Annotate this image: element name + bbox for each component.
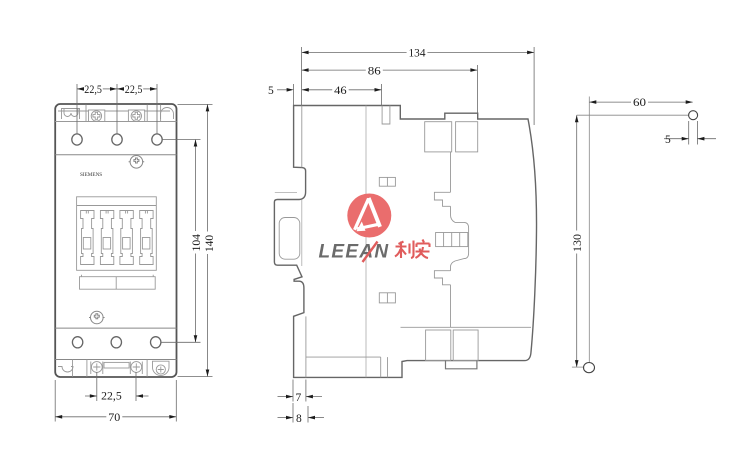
svg-text:22,5: 22,5: [101, 390, 122, 402]
svg-text:LEEAN: LEEAN: [319, 242, 390, 263]
svg-text:70: 70: [108, 412, 120, 424]
svg-text:5: 5: [268, 85, 274, 97]
svg-text:7: 7: [296, 392, 302, 404]
svg-text:134: 134: [409, 48, 426, 60]
svg-text:130: 130: [572, 234, 584, 252]
svg-text:104: 104: [191, 234, 203, 252]
svg-text:46: 46: [334, 85, 347, 97]
svg-text:SIEMENS: SIEMENS: [80, 172, 102, 178]
svg-text:22,5: 22,5: [84, 84, 102, 96]
svg-text:5: 5: [665, 134, 671, 146]
svg-text:140: 140: [204, 235, 216, 252]
svg-text:8: 8: [296, 413, 302, 425]
svg-text:86: 86: [368, 65, 381, 77]
svg-text:60: 60: [633, 97, 646, 109]
svg-text:22,5: 22,5: [125, 84, 143, 96]
